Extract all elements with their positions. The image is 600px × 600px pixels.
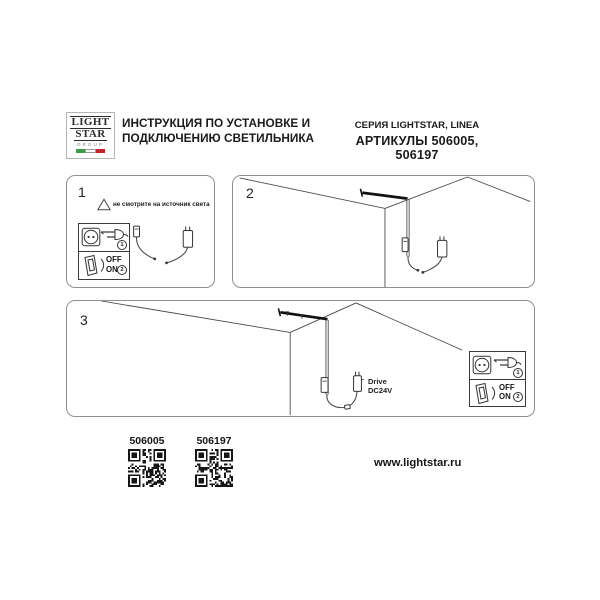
wall-corner-drawing-step3 xyxy=(67,301,534,416)
wall-corner-drawing-step2 xyxy=(233,176,534,287)
qr-code-506197 xyxy=(195,449,233,487)
onoff-labels: OFF ON xyxy=(499,383,515,402)
drive-label-line1: Drive xyxy=(368,377,387,386)
flag-white-segment xyxy=(85,149,96,154)
step-badge-plug: 1 xyxy=(513,368,523,378)
step-1-panel: 1 не смотрите на источник света xyxy=(66,175,215,288)
flag-red-segment xyxy=(96,149,105,154)
socket-icon xyxy=(81,227,101,247)
plug-step-cell: 1 xyxy=(470,352,525,380)
page-title: ИНСТРУКЦИЯ ПО УСТАНОВКЕ И ПОДКЛЮЧЕНИЮ СВ… xyxy=(122,116,314,146)
off-label: OFF xyxy=(499,383,515,393)
qr-article-label-1: 506005 xyxy=(127,435,167,447)
flag-green-segment xyxy=(76,149,85,154)
plug-step-cell: 1 xyxy=(79,224,129,252)
step-badge-switch: 2 xyxy=(513,392,523,402)
step-badge-plug: 1 xyxy=(117,240,127,250)
articles-label: АРТИКУЛЫ 506005, 506197 xyxy=(338,134,496,162)
qr-article-label-2: 506197 xyxy=(194,435,234,447)
step-1-number: 1 xyxy=(78,184,86,200)
instruction-sheet: LIGHT STAR GROUP ИНСТРУКЦИЯ ПО УСТАНОВКЕ… xyxy=(0,0,600,600)
title-line-1: ИНСТРУКЦИЯ ПО УСТАНОВКЕ И xyxy=(122,116,314,131)
socket-icon xyxy=(472,355,492,375)
off-label: OFF xyxy=(106,255,122,265)
switch-icon xyxy=(81,254,107,278)
header-right: СЕРИЯ LIGHTSTAR, LINEA АРТИКУЛЫ 506005, … xyxy=(338,120,496,162)
connection-steps-box: 1 OFF ON 2 xyxy=(469,351,526,407)
series-label: СЕРИЯ LIGHTSTAR, LINEA xyxy=(338,120,496,131)
step-3-panel: 3 Drive DC24V xyxy=(66,300,535,417)
logo-star-text: STAR xyxy=(74,129,106,141)
qr-code-506005 xyxy=(128,449,166,487)
warning-text: не смотрите на источник света xyxy=(113,201,210,208)
title-line-2: ПОДКЛЮЧЕНИЮ СВЕТИЛЬНИКА xyxy=(122,131,314,146)
drive-label-line2: DC24V xyxy=(368,386,392,395)
lightstar-logo: LIGHT STAR GROUP xyxy=(66,112,115,159)
switch-step-cell: OFF ON 2 xyxy=(470,380,525,407)
switch-step-cell: OFF ON 2 xyxy=(79,252,129,279)
warning-triangle-icon xyxy=(97,198,111,211)
step-3-number: 3 xyxy=(80,312,88,328)
step-2-panel: 2 xyxy=(232,175,535,288)
italy-flag-icon xyxy=(76,149,105,154)
website-url: www.lightstar.ru xyxy=(374,457,461,469)
step-2-number: 2 xyxy=(246,185,254,201)
connection-steps-box: 1 OFF ON 2 xyxy=(78,223,130,280)
switch-icon xyxy=(472,382,498,406)
logo-group-text: GROUP xyxy=(77,142,104,147)
step-badge-switch: 2 xyxy=(117,265,127,275)
